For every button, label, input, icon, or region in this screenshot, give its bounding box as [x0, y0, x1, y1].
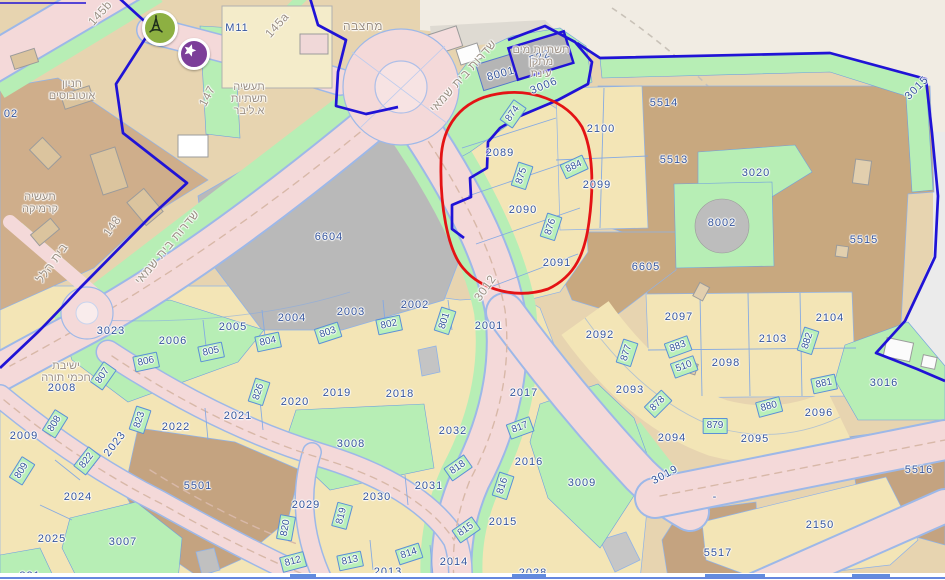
parcel-label: 2030 — [363, 491, 391, 503]
parcel-label: 02 — [4, 108, 18, 120]
area-label: תעשיהתשתיותא.ליבר — [231, 81, 267, 117]
parcel-label: 2096 — [805, 407, 833, 419]
parcel-label: 2022 — [162, 421, 190, 433]
parcel-label: 2020 — [281, 396, 309, 408]
parcel-label: 2001 — [475, 320, 503, 332]
parcel-label: 2091 — [543, 257, 571, 269]
parcel-label: 5515 — [850, 234, 878, 246]
parcel-label: 2014 — [440, 556, 468, 568]
parcel-label: 5513 — [660, 154, 688, 166]
parcel-label: 2089 — [486, 147, 514, 159]
parcel-label: 2104 — [816, 312, 844, 324]
parcel-label: M11 — [225, 22, 249, 34]
parcel-label: 2017 — [510, 387, 538, 399]
parcel-label: 2025 — [38, 533, 66, 545]
star-icon — [181, 41, 199, 59]
parcel-label: 5516 — [905, 464, 933, 476]
parcel-label: 2029 — [292, 499, 320, 511]
parcel-label: 2003 — [337, 306, 365, 318]
parcel-label: 2018 — [386, 388, 414, 400]
parcel-label: 3016 — [870, 377, 898, 389]
clipped-text-fragment — [852, 574, 890, 577]
parcel-label: 3008 — [337, 438, 365, 450]
parcel-label: 2095 — [741, 433, 769, 445]
clipped-text-fragment — [512, 574, 546, 577]
clipped-text-fragment — [290, 574, 316, 577]
parcel-label: 8002 — [708, 217, 736, 229]
parcel-label: 2009 — [10, 430, 38, 442]
parcel-label: 2094 — [658, 432, 686, 444]
parcel-label: 2016 — [515, 456, 543, 468]
parcel-label: 2103 — [759, 333, 787, 345]
parcel-label: 2097 — [665, 311, 693, 323]
parcel-label: 2006 — [159, 335, 187, 347]
street-label: מחצבה — [343, 19, 383, 33]
parcel-label: 2099 — [583, 179, 611, 191]
parcel-label: 2100 — [587, 123, 615, 135]
area-label: תשתיות מיםמתקןעינת — [512, 44, 569, 80]
area-label: ישיבתחכמי תורה — [41, 360, 90, 384]
area-label: חניוןאוטובוסים — [49, 78, 96, 102]
parcel-label: 2024 — [64, 491, 92, 503]
parcel-label: 2004 — [278, 312, 306, 324]
parcel-label: 2150 — [806, 519, 834, 531]
parcel-label: 2093 — [616, 384, 644, 396]
parcel-label: 2090 — [509, 204, 537, 216]
parcel-label: 3007 — [109, 536, 137, 548]
parcel-label: 2015 — [489, 516, 517, 528]
green-plot-label: 879 — [703, 418, 728, 434]
parcel-label: 5517 — [704, 547, 732, 559]
parcel-label: 2032 — [439, 425, 467, 437]
parcel-label: 3020 — [742, 167, 770, 179]
parcel-label: 2092 — [586, 329, 614, 341]
parcel-label: 6605 — [632, 261, 660, 273]
map-layers — [0, 0, 945, 580]
parcel-label: - — [713, 491, 718, 503]
parcel-label: 5514 — [650, 97, 678, 109]
parcel-label: 3023 — [97, 325, 125, 337]
bottom-clipped-strip — [0, 573, 945, 580]
parcel-label: 2002 — [401, 299, 429, 311]
bottom-blue-line — [0, 577, 945, 579]
eiffel-tower-icon — [145, 13, 167, 35]
parcel-label: 2005 — [219, 321, 247, 333]
parcel-label: 6604 — [315, 231, 343, 243]
parcel-label: 5501 — [184, 480, 212, 492]
map-canvas[interactable]: 02M1180015223006208920902091210020995514… — [0, 0, 945, 580]
parcel-label: 2031 — [415, 480, 443, 492]
parcel-label: 2021 — [224, 410, 252, 422]
parcel-label: 2098 — [712, 357, 740, 369]
parcel-label: 3009 — [568, 477, 596, 489]
eiffel-tower-marker-icon[interactable] — [142, 10, 178, 46]
area-label: תעשיהקרמיקה — [22, 191, 58, 215]
star-marker-icon[interactable] — [178, 38, 210, 70]
parcel-label: 2019 — [323, 387, 351, 399]
clipped-text-fragment — [705, 574, 765, 577]
